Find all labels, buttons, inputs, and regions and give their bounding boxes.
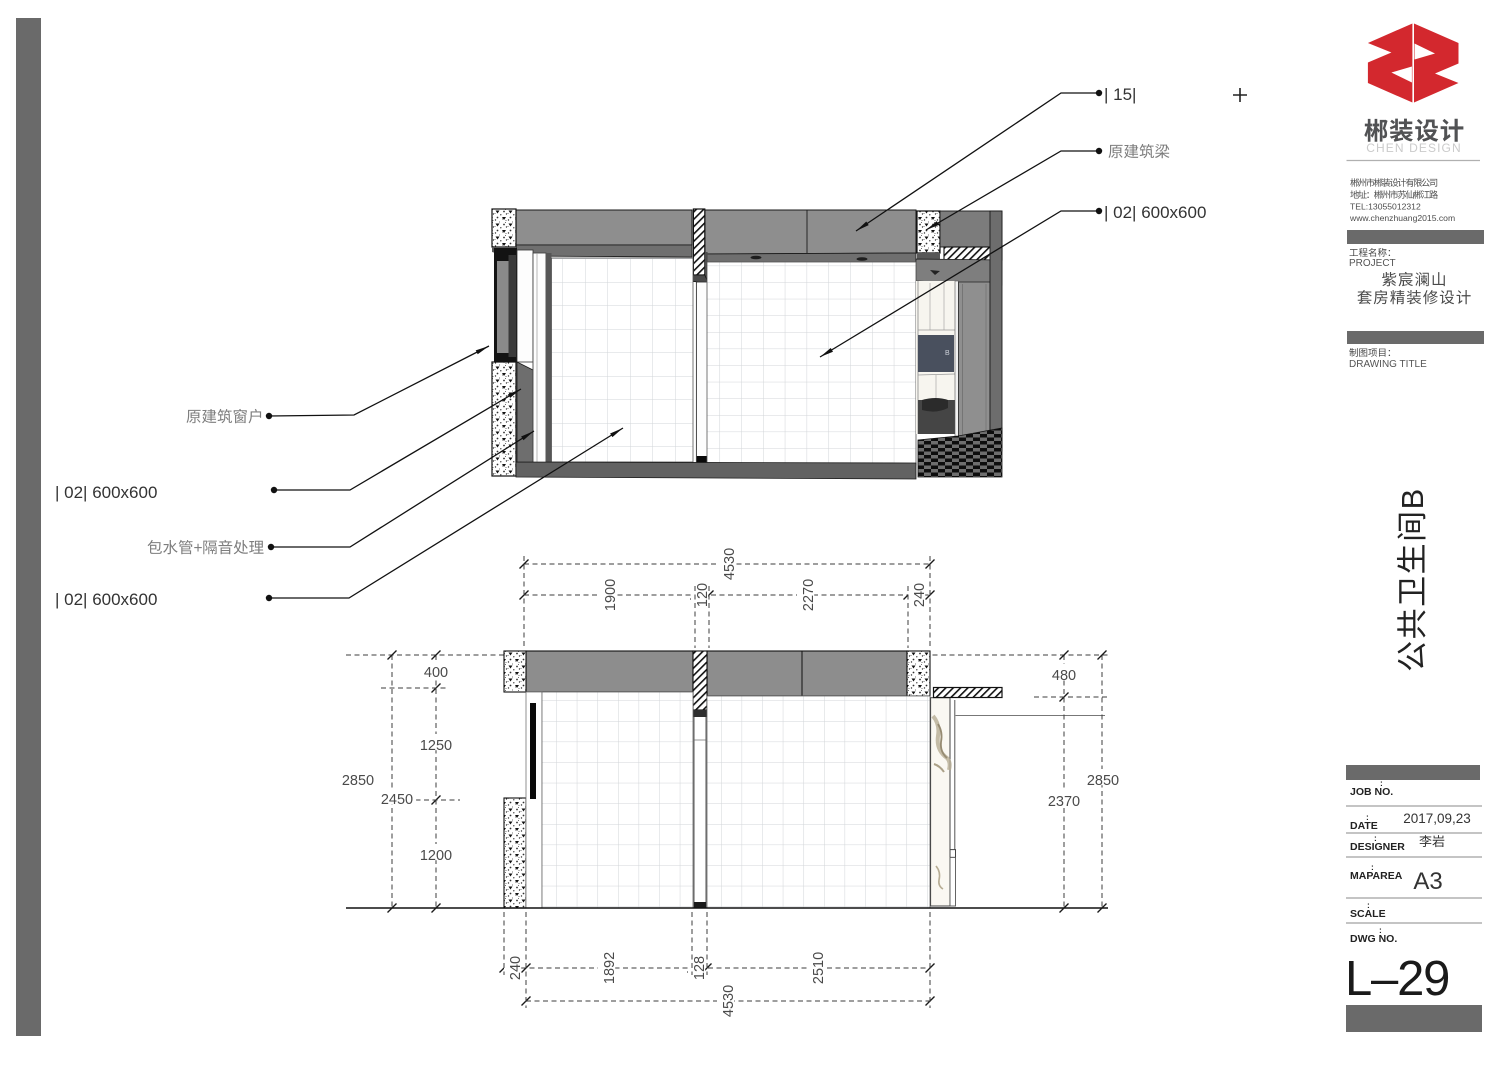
svg-text:1892: 1892 [602, 952, 618, 984]
svg-text:2510: 2510 [811, 952, 827, 984]
svg-text:DRAWING TITLE: DRAWING TITLE [1349, 359, 1427, 370]
svg-text:DWG NO.: DWG NO. [1350, 933, 1397, 945]
svg-text:CHEN DESIGN: CHEN DESIGN [1366, 141, 1461, 155]
svg-text:A3: A3 [1413, 868, 1442, 895]
svg-text::: : [1367, 900, 1370, 910]
svg-text:MAPAREA: MAPAREA [1350, 870, 1403, 882]
svg-text:240: 240 [508, 956, 524, 980]
svg-text:2450: 2450 [381, 792, 413, 808]
svg-text::: : [1374, 833, 1377, 843]
svg-text:| 02| 600x600: | 02| 600x600 [55, 590, 157, 609]
svg-text:| 15|: | 15| [1104, 85, 1136, 104]
svg-text:1200: 1200 [420, 848, 452, 864]
svg-text:DATE: DATE [1350, 820, 1378, 832]
svg-text:JOB NO.: JOB NO. [1350, 786, 1393, 798]
svg-text:| 02| 600x600: | 02| 600x600 [1104, 203, 1206, 222]
svg-text::: : [1379, 925, 1382, 935]
svg-text:2017,09,23: 2017,09,23 [1403, 811, 1471, 826]
svg-text:PROJECT: PROJECT [1349, 258, 1396, 269]
svg-text:+: + [194, 540, 203, 557]
svg-text:2850: 2850 [1087, 773, 1119, 789]
svg-text::: : [1371, 862, 1374, 872]
svg-text:2850: 2850 [342, 773, 374, 789]
svg-text:TEL:13055012312: TEL:13055012312 [1350, 202, 1421, 212]
svg-text:1900: 1900 [603, 579, 619, 611]
svg-text:480: 480 [1052, 668, 1076, 684]
svg-text:128: 128 [692, 956, 708, 980]
svg-text:2370: 2370 [1048, 794, 1080, 810]
svg-text:2270: 2270 [801, 579, 817, 611]
svg-text:B: B [1395, 489, 1430, 510]
svg-text:www.chenzhuang2015.com: www.chenzhuang2015.com [1349, 213, 1455, 223]
svg-text:B: B [945, 350, 950, 357]
svg-text::: : [1366, 812, 1369, 822]
svg-text:L–29: L–29 [1345, 952, 1449, 1006]
svg-text:4530: 4530 [721, 985, 737, 1017]
svg-text:240: 240 [912, 583, 928, 607]
svg-text:1250: 1250 [420, 738, 452, 754]
svg-text:DESIGNER: DESIGNER [1350, 841, 1405, 853]
svg-text:| 02| 600x600: | 02| 600x600 [55, 483, 157, 502]
svg-text:400: 400 [424, 665, 448, 681]
svg-text:4530: 4530 [722, 548, 738, 580]
svg-text::: : [1380, 778, 1383, 788]
